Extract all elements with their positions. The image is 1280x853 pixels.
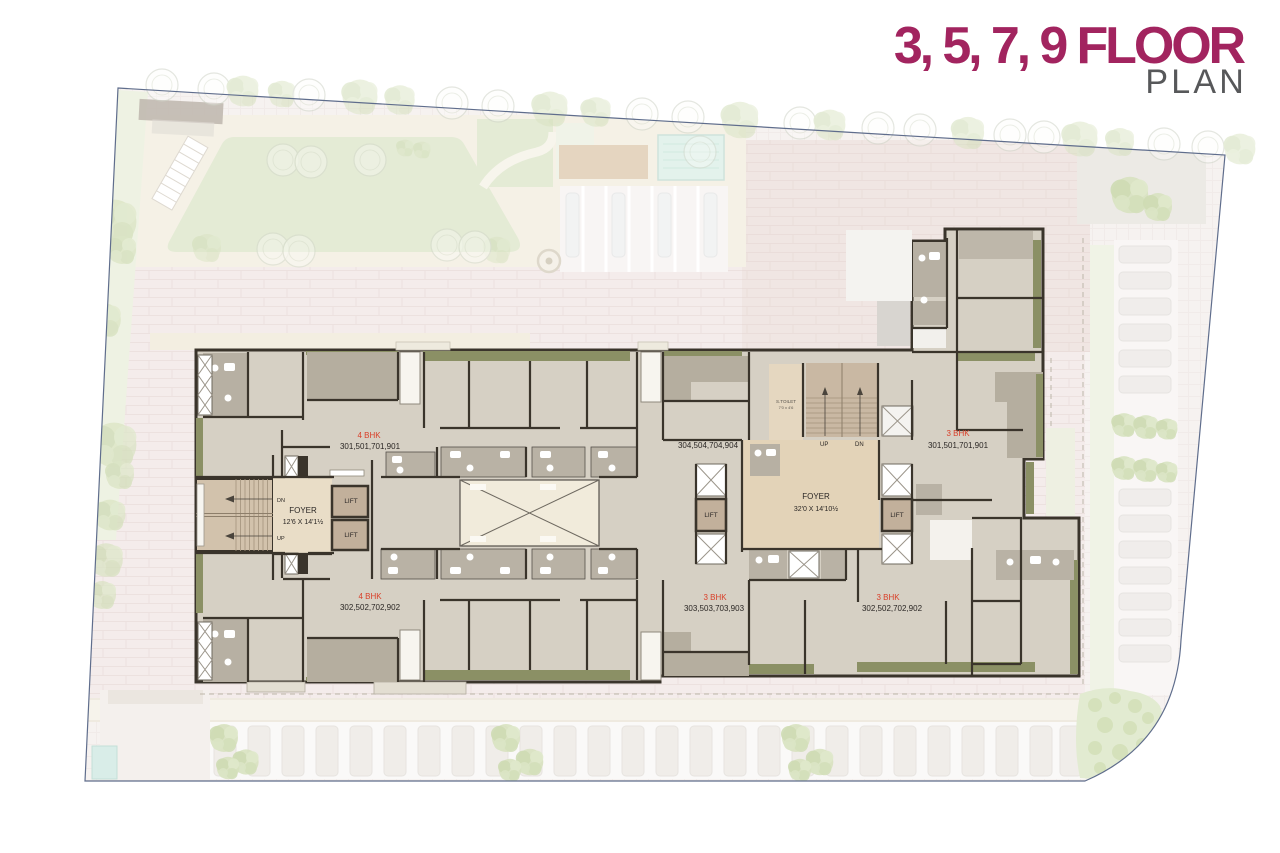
svg-text:LIFT: LIFT [344, 532, 357, 539]
svg-text:FOYER: FOYER [802, 492, 830, 501]
svg-text:DN: DN [277, 498, 285, 504]
svg-text:4 BHK: 4 BHK [358, 592, 382, 601]
svg-text:S.TOILET: S.TOILET [776, 399, 796, 404]
svg-text:LIFT: LIFT [344, 498, 357, 505]
svg-text:301,501,701,901: 301,501,701,901 [928, 441, 989, 450]
svg-text:302,502,702,902: 302,502,702,902 [862, 604, 923, 613]
svg-text:LIFT: LIFT [890, 512, 903, 519]
svg-text:7'0 x 4'6: 7'0 x 4'6 [779, 405, 794, 410]
svg-text:UP: UP [277, 536, 285, 542]
svg-text:3 BHK: 3 BHK [876, 593, 900, 602]
svg-text:32'0 X 14'10½: 32'0 X 14'10½ [794, 505, 838, 513]
svg-text:304,504,704,904: 304,504,704,904 [678, 441, 739, 450]
svg-text:LIFT: LIFT [704, 512, 717, 519]
svg-text:3 BHK: 3 BHK [703, 593, 727, 602]
svg-text:302,502,702,902: 302,502,702,902 [340, 603, 401, 612]
svg-text:3 BHK: 3 BHK [946, 429, 970, 438]
svg-text:303,503,703,903: 303,503,703,903 [684, 604, 745, 613]
svg-text:12'6 X 14'1½: 12'6 X 14'1½ [283, 518, 324, 526]
svg-text:4 BHK: 4 BHK [357, 431, 381, 440]
svg-text:FOYER: FOYER [289, 506, 317, 515]
svg-text:DN: DN [855, 442, 864, 448]
svg-text:UP: UP [820, 442, 828, 448]
svg-text:301,501,701,901: 301,501,701,901 [340, 442, 401, 451]
